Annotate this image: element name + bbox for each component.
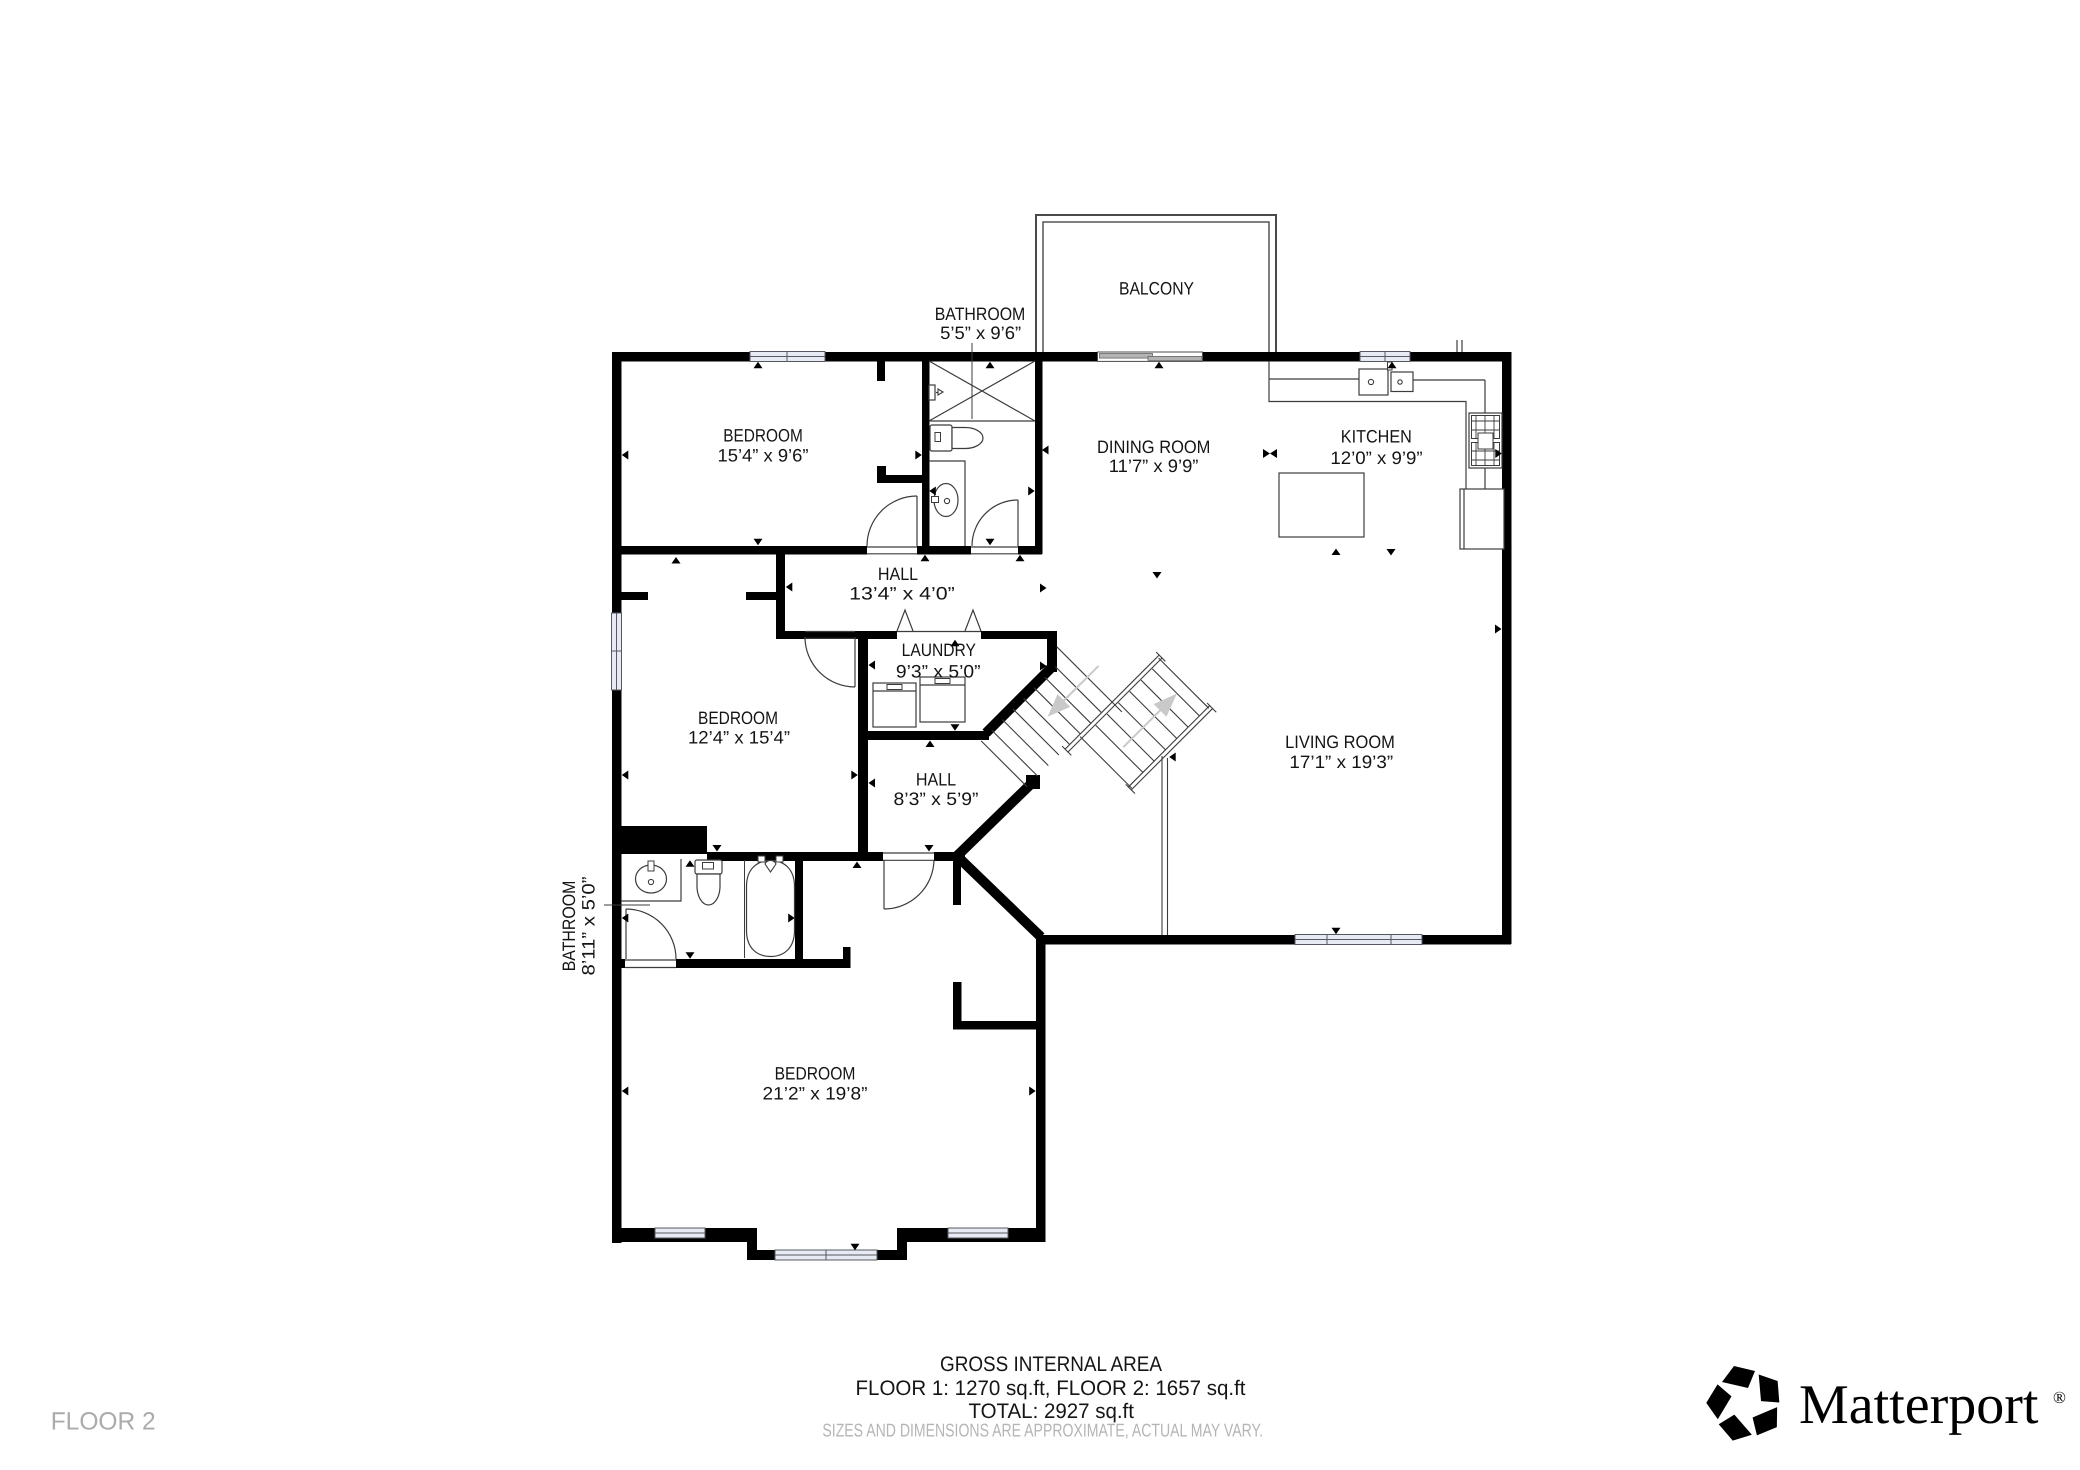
svg-text:11’7” x 9’9”: 11’7” x 9’9” [1109,456,1199,476]
svg-text:GROSS INTERNAL AREA: GROSS INTERNAL AREA [940,1353,1162,1376]
svg-text:BALCONY: BALCONY [1119,279,1194,299]
svg-text:8’3” x 5’9”: 8’3” x 5’9” [894,789,979,809]
svg-text:5’5” x 9’6”: 5’5” x 9’6” [940,323,1021,343]
svg-text:9’3” x 5’0”: 9’3” x 5’0” [896,661,981,681]
svg-text:17’1” x 19’3”: 17’1” x 19’3” [1289,752,1393,772]
svg-text:21’2” x 19’8”: 21’2” x 19’8” [763,1084,868,1104]
svg-text:BEDROOM: BEDROOM [775,1063,856,1083]
svg-text:BATHROOM: BATHROOM [559,881,579,972]
svg-text:®: ® [2053,1388,2066,1407]
svg-text:FLOOR 1: 1270 sq.ft, FLOOR 2:: FLOOR 1: 1270 sq.ft, FLOOR 2: 1657 sq.ft [856,1377,1246,1400]
svg-text:13’4” x 4’0”: 13’4” x 4’0” [849,584,955,604]
svg-text:HALL: HALL [878,564,918,584]
svg-text:Matterport: Matterport [1799,1374,2039,1436]
svg-text:15’4” x 9’6”: 15’4” x 9’6” [718,446,809,466]
svg-text:12’0” x 9’9”: 12’0” x 9’9” [1330,448,1422,468]
svg-text:HALL: HALL [916,770,956,790]
svg-text:LAUNDRY: LAUNDRY [902,640,976,660]
svg-text:BATHROOM: BATHROOM [935,304,1026,324]
svg-text:12’4” x 15’4”: 12’4” x 15’4” [688,728,790,748]
svg-text:KITCHEN: KITCHEN [1341,427,1412,447]
svg-text:LIVING ROOM: LIVING ROOM [1285,732,1395,752]
svg-text:DINING ROOM: DINING ROOM [1097,437,1210,457]
svg-text:BEDROOM: BEDROOM [723,426,803,446]
svg-text:8’11” x 5’0”: 8’11” x 5’0” [579,877,599,976]
svg-text:FLOOR 2: FLOOR 2 [51,1408,156,1436]
svg-text:BEDROOM: BEDROOM [698,708,778,728]
svg-text:SIZES AND DIMENSIONS ARE APPRO: SIZES AND DIMENSIONS ARE APPROXIMATE, AC… [822,1420,1263,1441]
